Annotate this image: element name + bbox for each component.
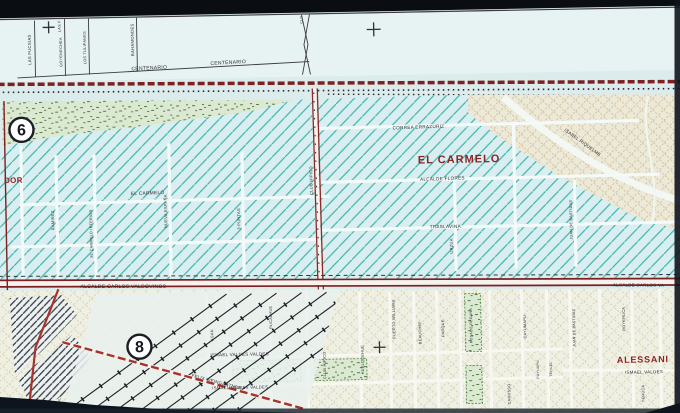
map-label-puerto-williams: PUERTO WILLIAMS: [392, 299, 397, 339]
map-label-las-f-partial: LAS F: [57, 20, 61, 33]
map-label-cayumapu: CAYUMAPU: [523, 315, 527, 339]
map-label-dor-partial: DOR: [4, 176, 23, 185]
sheet-marker-6: 6: [9, 118, 33, 142]
map-label-juan-de-bastidas-south: JUAN DE BASTIDAS: [572, 308, 577, 346]
map-label-ismael-valdes: ISMAEL VALDES: [625, 369, 663, 375]
sheet-number: 6: [17, 122, 26, 139]
map-label-el-carmelo-street: EL CARMELO: [131, 190, 165, 197]
street-map-canvas: LAS FUCSIASLAS FGOYENECHEALOS TULIPANESB…: [0, 0, 680, 413]
map-label-tres-puntas: 3 PUNTAS: [236, 208, 241, 230]
map-label-nueva-espana: NUEVA ESPAÑA: [163, 194, 169, 228]
map-label-beauchef: BEAUCHEF: [418, 321, 422, 345]
map-label-ismael-valdes-valdes-1: ISMAEL VALDES VALDES: [210, 351, 268, 357]
map-label-alcalde-carlos-valdovinos: ALCALDE CARLOS VALDOVINOS: [80, 284, 166, 290]
map-label-parque: PARQUE: [441, 319, 445, 337]
map-label-rucalhue: RUCALHUE: [269, 305, 273, 329]
map-label-juan-de-bastidas-north: JUAN DE BASTIDAS: [569, 200, 574, 240]
map-label-bahamondes: BAHAMONDES: [130, 23, 136, 56]
map-label-club-hipico-north: CLUB HIPICO: [308, 166, 314, 195]
map-label-los-tulipanes: LOS TULIPANES: [83, 31, 88, 65]
map-label-yeruca: YERUCA: [641, 384, 645, 402]
map-label-el-carmelo-district: EL CARMELO: [418, 153, 501, 167]
map-label-ramirez: RAMIREZ: [50, 210, 55, 230]
map-label-carusso: CARUSSO: [507, 383, 511, 404]
map-label-club-hipico-south: CLUB HIPICO: [323, 351, 328, 379]
map-label-las-fucsias: LAS FUCSIAS: [27, 34, 33, 65]
top-band: [0, 8, 680, 83]
map-label-urzua: URZUA: [449, 238, 454, 253]
map-label-rosalie-regana: ROSALIE REGANA: [469, 308, 474, 344]
map-label-goyenechea: GOYENECHEA: [59, 37, 64, 67]
map-label-puyuapu: PUYUAPU: [536, 360, 540, 379]
map-label-clo: CLO: [299, 16, 303, 24]
map-label-alessani-district: ALESSANI: [617, 354, 669, 365]
map-label-traslavina: TRASLAVINA: [430, 224, 462, 230]
map-label-ugan: UGAN: [210, 329, 214, 341]
map-label-alcalde-carlos-va-partial: ALCALDE CARLOS VA: [613, 282, 664, 287]
map-label-royeruca: ROYERUCA: [622, 307, 626, 331]
paper-map: LAS FUCSIASLAS FGOYENECHEALOS TULIPANESB…: [0, 6, 680, 413]
map-photo: LAS FUCSIASLAS FGOYENECHEALOS TULIPANESB…: [0, 0, 680, 413]
sheet-number: 8: [135, 339, 144, 356]
map-label-tehuel: TEHUEL: [549, 362, 553, 377]
map-label-huelquehue: HUELQUEHUE: [360, 345, 365, 375]
sheet-marker-8: 8: [127, 334, 151, 358]
